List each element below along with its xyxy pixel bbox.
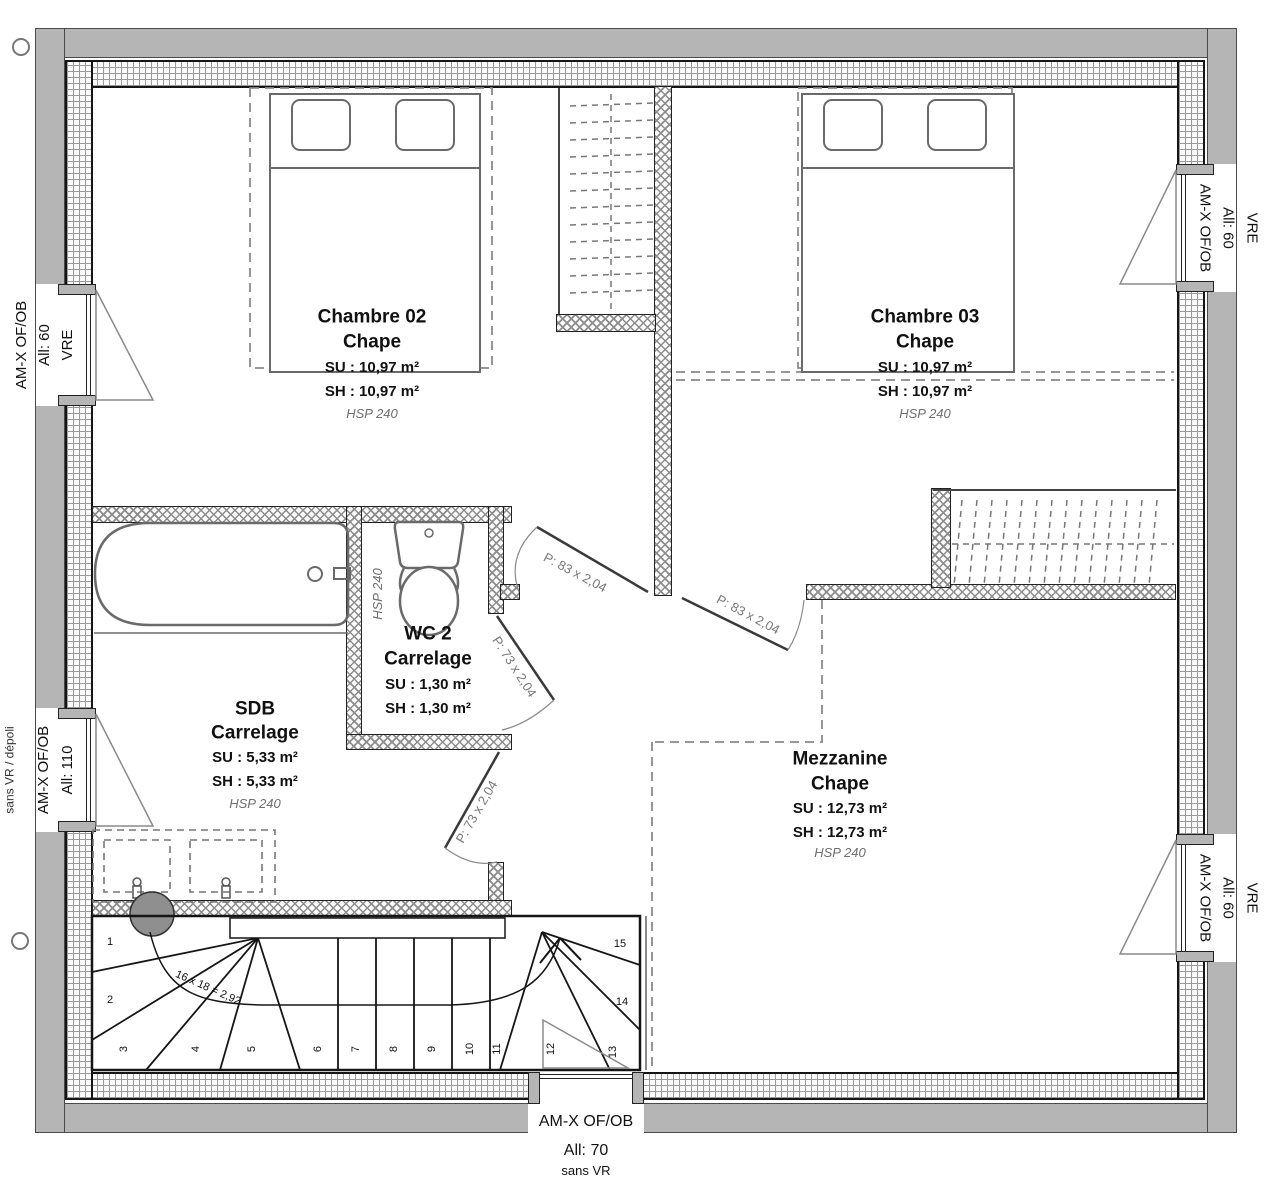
window-bottom-note: sans VR [561, 1164, 610, 1178]
bathtub-outline [95, 523, 348, 625]
pillow [396, 100, 454, 150]
pillow [824, 100, 882, 150]
chambre03-su: SU : 10,97 m² [878, 360, 972, 377]
window-left-middle-note: sans VR / dépoli [3, 726, 16, 813]
stair-outline [92, 916, 640, 1070]
window-right-bottom-type: AM-X OF/OB [1196, 854, 1213, 942]
corner-mark-icon [12, 933, 28, 949]
window-bottom-type: AM-X OF/OB [536, 1113, 636, 1131]
window-right-top-sill: All: 60 [1219, 207, 1236, 249]
step-number-11: 11 [491, 1043, 503, 1054]
toilet [395, 522, 463, 635]
sdb-finish: Carrelage [211, 724, 299, 745]
casement-flap [96, 714, 153, 826]
mezzanine-hsp: HSP 240 [814, 846, 866, 860]
chambre02-su: SU : 10,97 m² [325, 360, 419, 377]
landing-edge [230, 918, 505, 938]
window-left-middle-type: AM-X OF/OB [36, 726, 53, 814]
step-number-8: 8 [388, 1046, 400, 1052]
wc2-finish: Carrelage [384, 650, 472, 671]
step-number-4: 4 [190, 1046, 202, 1052]
door-swing-arc [515, 527, 537, 592]
chambre02-sh: SH : 10,97 m² [325, 384, 419, 401]
door-swing-arc [502, 700, 554, 730]
door-swing-arc [445, 848, 497, 863]
pillow [928, 100, 986, 150]
chambre02-finish: Chape [343, 333, 401, 354]
bathtub-drain [308, 567, 322, 581]
wc2-title: WC 2 [404, 625, 452, 646]
window-right-bottom-sill: All: 60 [1219, 877, 1236, 919]
wc2-su: SU : 1,30 m² [385, 677, 471, 694]
step-number-12: 12 [545, 1043, 557, 1055]
chambre03-hsp: HSP 240 [899, 407, 951, 421]
door-swing-arc [788, 600, 804, 650]
staircase [92, 916, 646, 1070]
step-number-10: 10 [464, 1043, 476, 1055]
window-right-top-vre: VRE [1243, 213, 1260, 244]
bathtub [94, 523, 350, 633]
step-number-13: 13 [607, 1046, 619, 1058]
basin [104, 840, 170, 892]
casement-flap [96, 290, 153, 400]
casement-flap [1120, 840, 1176, 954]
toilet-button [425, 529, 433, 537]
chambre03-title: Chambre 03 [871, 308, 980, 329]
window-left-top-vre: VRE [60, 330, 77, 361]
doors [445, 527, 804, 863]
bed-chambre02 [270, 94, 480, 372]
window-right-top-type: AM-X OF/OB [1196, 184, 1213, 272]
closet-top [559, 88, 654, 314]
sdb-su: SU : 5,33 m² [212, 750, 298, 767]
window-right-bottom-vre: VRE [1243, 883, 1260, 914]
mezzanine-finish: Chape [811, 775, 869, 796]
corner-mark-icon [13, 39, 29, 55]
chambre02-hsp: HSP 240 [346, 407, 398, 421]
window-left-middle-sill: All: 110 [60, 746, 77, 795]
wc2-sh: SH : 1,30 m² [385, 701, 471, 718]
floor-plan: Chambre 02 Chape SU : 10,97 m² SH : 10,9… [0, 0, 1272, 1180]
basin [190, 840, 262, 892]
window-left-top-type: AM-X OF/OB [14, 301, 31, 389]
sdb-title: SDB [235, 700, 275, 721]
step-number-1: 1 [107, 936, 113, 948]
vanity [93, 830, 275, 902]
sdb-sh: SH : 5,33 m² [212, 774, 298, 791]
chambre03-finish: Chape [896, 333, 954, 354]
step-number-3: 3 [118, 1046, 130, 1052]
chambre03-sh: SH : 10,97 m² [878, 384, 972, 401]
sdb-hsp: HSP 240 [229, 797, 281, 811]
step-number-14: 14 [616, 996, 628, 1008]
step-number-9: 9 [426, 1046, 438, 1052]
step-number-2: 2 [107, 994, 113, 1006]
window-bottom-sill: All: 70 [564, 1142, 608, 1160]
casement-flap [1120, 170, 1176, 284]
mezzanine-sh: SH : 12,73 m² [793, 825, 887, 842]
mezzanine-su: SU : 12,73 m² [793, 801, 887, 818]
bed-chambre03 [802, 94, 1014, 372]
closet-chambre03 [933, 490, 1176, 586]
pillow [292, 100, 350, 150]
window-left-top-sill: All: 60 [37, 324, 54, 366]
step-number-6: 6 [312, 1046, 324, 1052]
step-number-5: 5 [246, 1046, 258, 1052]
column [130, 892, 174, 936]
chambre02-title: Chambre 02 [318, 308, 427, 329]
plan-linework [0, 0, 1272, 1180]
mezzanine-title: Mezzanine [792, 750, 887, 771]
step-number-15: 15 [614, 938, 626, 950]
wc2-hsp: HSP 240 [371, 568, 385, 620]
step-number-7: 7 [350, 1046, 362, 1052]
